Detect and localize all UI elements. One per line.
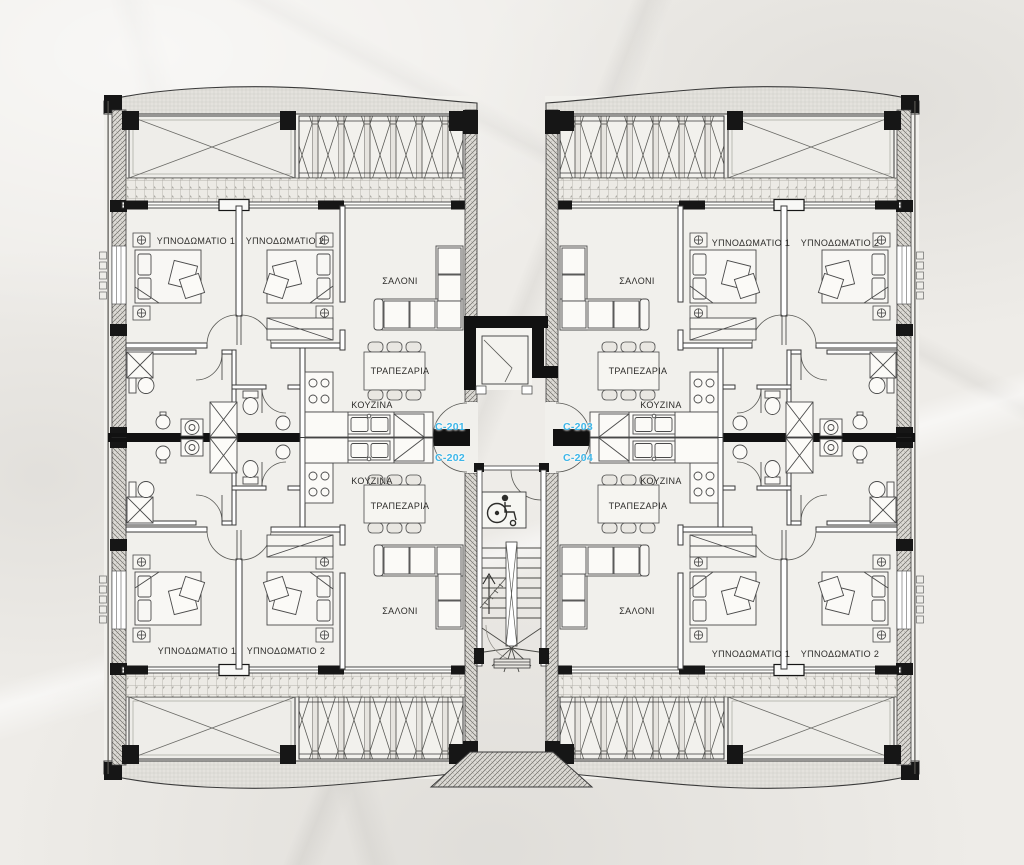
floor-plan-drawing xyxy=(0,0,1024,865)
accessible-landing xyxy=(474,463,549,528)
upper-left-apartment-linework xyxy=(100,87,479,438)
elevator xyxy=(464,316,558,394)
upper-right-apartment-linework xyxy=(545,87,924,438)
lower-left-apartment-linework xyxy=(100,438,479,789)
floor-plan-canvas: ΥΠΝΟΔΩΜΑΤΙΟ 1 ΥΠΝΟΔΩΜΑΤΙΟ 2 ΣΑΛΟΝΙ ΤΡΑΠΕ… xyxy=(0,0,1024,865)
entry-mat xyxy=(494,659,530,668)
lower-right-apartment-linework xyxy=(545,438,924,789)
